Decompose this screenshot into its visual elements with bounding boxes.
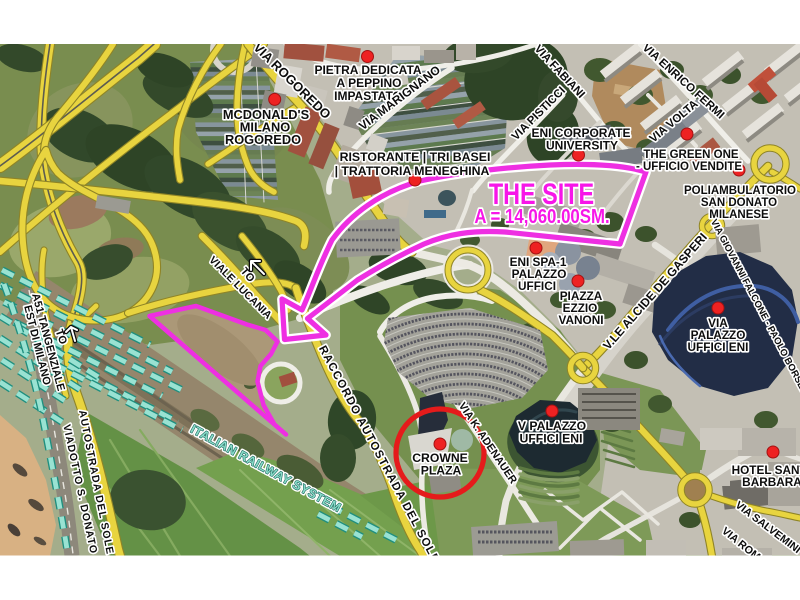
svg-text:VANONI: VANONI [558, 313, 603, 327]
svg-text:BARBARA: BARBARA [742, 475, 800, 489]
svg-text:UFFICI ENI: UFFICI ENI [520, 432, 583, 446]
svg-text:RISTORANTE | TRI BASEI: RISTORANTE | TRI BASEI [340, 150, 491, 164]
svg-text:SAN DONATO: SAN DONATO [701, 197, 777, 209]
svg-text:UNIVERSITY: UNIVERSITY [546, 139, 618, 153]
svg-text:A = 14,060.00SM.: A = 14,060.00SM. [474, 204, 609, 227]
svg-text:PLAZA: PLAZA [421, 464, 462, 478]
svg-text:ROGOREDO: ROGOREDO [225, 132, 301, 147]
svg-text:UFFICI ENI: UFFICI ENI [688, 340, 749, 354]
svg-text:UFFICI: UFFICI [518, 279, 556, 293]
svg-text:A PEPPINO: A PEPPINO [337, 76, 402, 90]
svg-text:PIETRA DEDICATA: PIETRA DEDICATA [314, 63, 421, 77]
svg-text:POLIAMBULATORIO: POLIAMBULATORIO [684, 185, 796, 197]
svg-text:- UFFICIO VENDITE: - UFFICIO VENDITE [636, 161, 742, 173]
svg-text:THE GREEN ONE: THE GREEN ONE [643, 149, 739, 161]
svg-text:| TRATTORIA MENEGHINA: | TRATTORIA MENEGHINA [335, 164, 490, 178]
